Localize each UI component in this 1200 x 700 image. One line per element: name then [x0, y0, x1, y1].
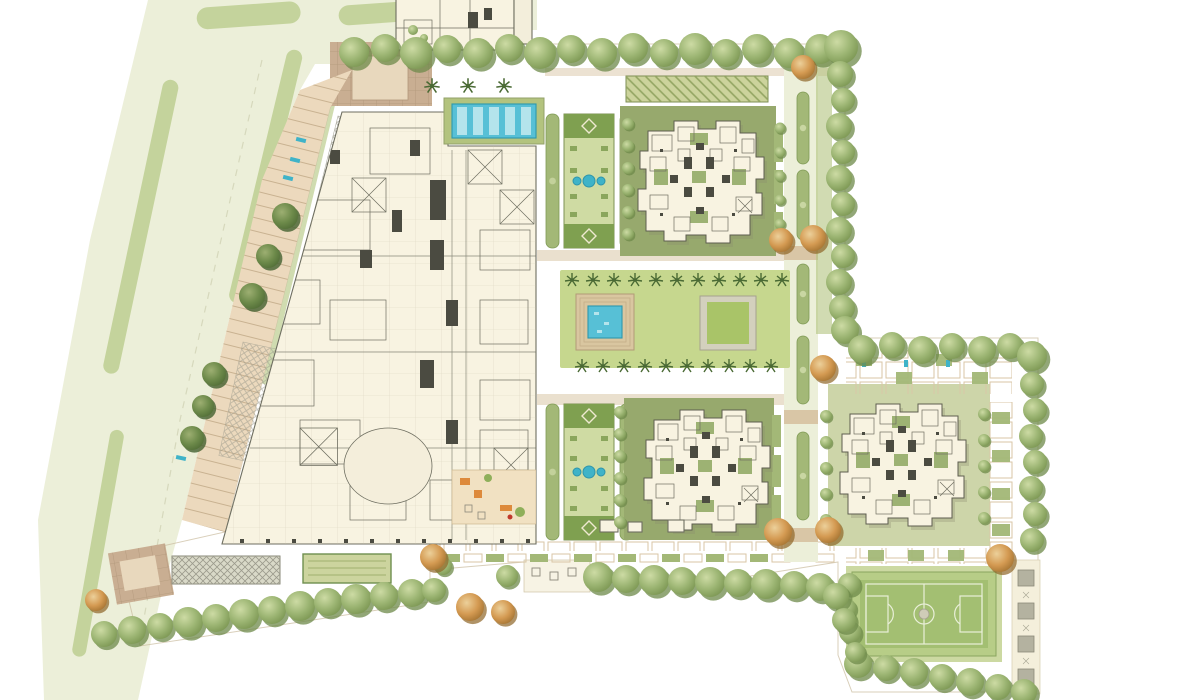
seating-terrace [524, 560, 590, 592]
lap-lane [457, 107, 467, 135]
paver [1018, 636, 1034, 652]
service-structures [600, 520, 684, 532]
planter-pot [515, 507, 525, 517]
center-logo [919, 609, 929, 619]
east-verge [816, 58, 832, 334]
paver [1018, 570, 1034, 586]
shade-hatch [626, 76, 768, 102]
plaza-inset [120, 555, 161, 591]
entry-plaza-south [108, 543, 174, 604]
great-lawn-court [560, 270, 790, 368]
hedge-node [549, 178, 556, 185]
red-seat [508, 515, 513, 520]
lap-lane [505, 107, 515, 135]
tower-east-plan [840, 404, 969, 530]
kiosk [668, 520, 684, 532]
site-plan-svg [0, 0, 1200, 700]
lap-lane [521, 107, 531, 135]
trellis-hatch [172, 556, 280, 584]
parterre-block [564, 114, 614, 138]
furnished-courtyard [452, 470, 536, 524]
hedge-node [549, 469, 556, 476]
sports-court [846, 566, 1002, 662]
tower-south-plan [644, 410, 773, 536]
core-block [468, 12, 478, 28]
pergola-walk [172, 556, 280, 584]
core-block [484, 8, 492, 20]
parterre-block [564, 404, 614, 428]
green-court-west [303, 554, 391, 583]
plunge-pool [576, 294, 634, 350]
shade-structure [626, 76, 768, 102]
east-road-medians [797, 92, 809, 520]
paver-walk [1012, 560, 1040, 694]
sunken-lawn-turf [707, 302, 749, 344]
orange-lounger [500, 505, 512, 511]
oval-hall [344, 428, 432, 504]
court-tree-icon [408, 25, 418, 35]
road-crosser [784, 410, 818, 424]
planter-band-green [428, 551, 838, 563]
water-sparkle [594, 312, 599, 315]
sunken-lawn [700, 296, 756, 350]
water-sparkle [597, 330, 602, 333]
orange-lounger [460, 478, 470, 485]
lap-lane [473, 107, 483, 135]
site-plan-canvas [0, 0, 1200, 700]
kiosk [628, 522, 642, 532]
water-sparkle [604, 322, 609, 325]
fountain-jets [573, 175, 605, 187]
parterre-garden-north [546, 114, 633, 248]
fountain-jets [573, 466, 605, 478]
planter-pot [484, 474, 492, 482]
tower-ne-plan [638, 121, 767, 247]
paver [1018, 603, 1034, 619]
orange-lounger [474, 490, 482, 498]
lap-lane [489, 107, 499, 135]
parterre-block [564, 224, 614, 248]
lap-pool [444, 98, 544, 144]
